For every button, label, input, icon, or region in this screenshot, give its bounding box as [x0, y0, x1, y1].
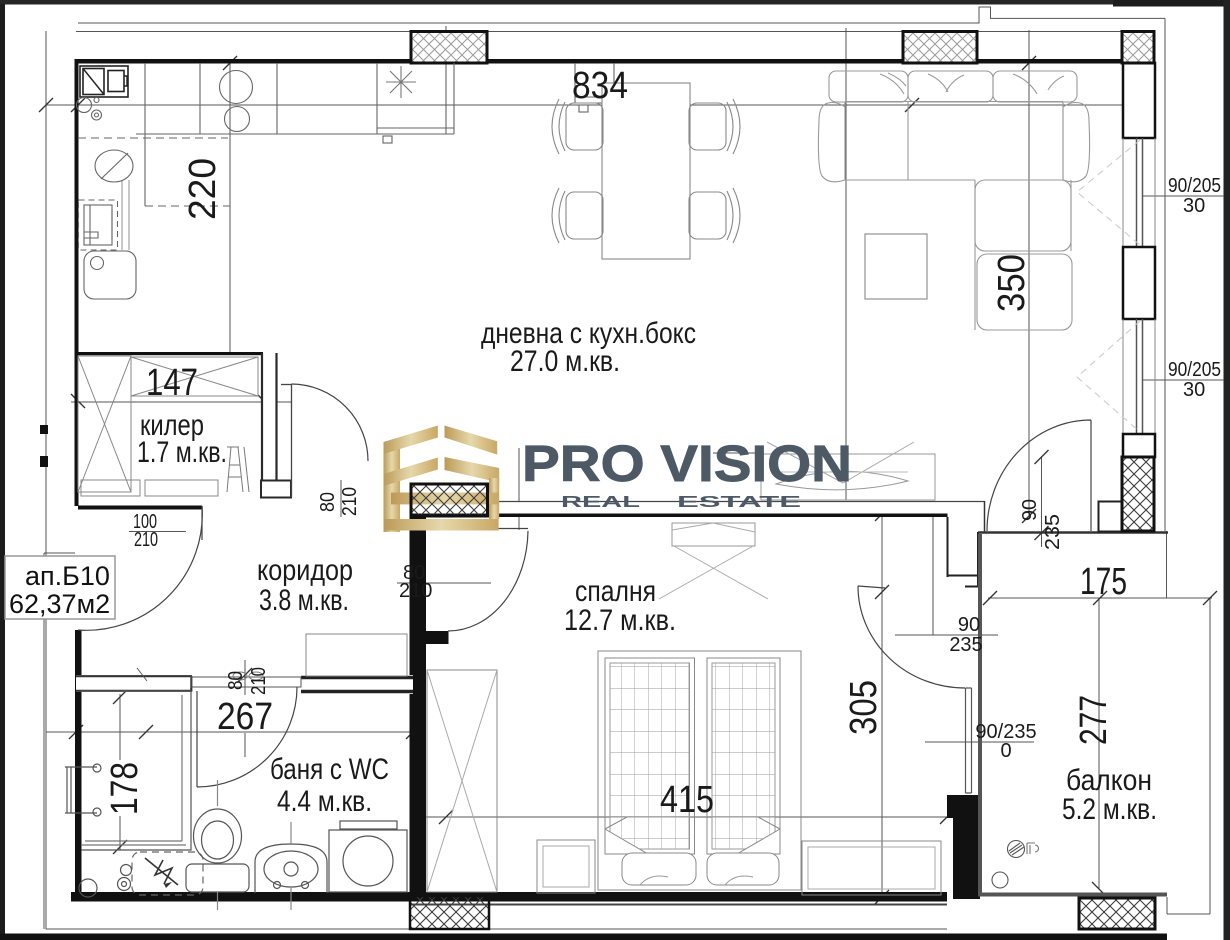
svg-text:1.7 м.кв.: 1.7 м.кв. [137, 436, 227, 469]
svg-text:210: 210 [134, 529, 158, 551]
svg-text:REAL: REAL [561, 494, 640, 511]
svg-text:350: 350 [991, 254, 1033, 312]
svg-text:30: 30 [1183, 379, 1205, 401]
svg-text:90/205: 90/205 [1168, 175, 1221, 197]
svg-text:305: 305 [843, 680, 885, 735]
svg-text:267: 267 [217, 696, 273, 738]
svg-text:0: 0 [1000, 740, 1011, 762]
svg-text:277: 277 [1073, 695, 1115, 745]
svg-text:коридор: коридор [257, 554, 353, 587]
svg-text:220: 220 [182, 158, 224, 220]
svg-text:5.2 м.кв.: 5.2 м.кв. [1062, 793, 1157, 826]
svg-text:4.4 м.кв.: 4.4 м.кв. [277, 785, 372, 818]
svg-text:3.8 м.кв.: 3.8 м.кв. [259, 584, 349, 617]
svg-text:175: 175 [1080, 561, 1127, 603]
svg-text:210: 210 [339, 487, 361, 516]
svg-text:90: 90 [1019, 499, 1041, 521]
svg-text:30: 30 [1183, 195, 1205, 217]
svg-text:баня с WC: баня с WC [270, 753, 389, 786]
svg-text:80: 80 [225, 671, 247, 690]
svg-text:ап.Б10: ап.Б10 [25, 561, 110, 591]
svg-text:80: 80 [317, 492, 339, 512]
svg-text:147: 147 [146, 362, 198, 404]
svg-text:27.0 м.кв.: 27.0 м.кв. [510, 345, 620, 378]
svg-text:210: 210 [399, 580, 432, 602]
svg-text:415: 415 [660, 779, 714, 821]
svg-text:834: 834 [572, 65, 628, 107]
svg-text:210: 210 [248, 667, 270, 695]
svg-text:12.7 м.кв.: 12.7 м.кв. [564, 604, 676, 637]
svg-text:235: 235 [1042, 514, 1064, 550]
svg-text:62,37м2: 62,37м2 [9, 589, 110, 619]
svg-text:90/205: 90/205 [1168, 359, 1221, 381]
svg-text:235: 235 [949, 634, 982, 656]
svg-text:ESTATE: ESTATE [677, 494, 801, 511]
svg-text:90: 90 [958, 614, 980, 636]
svg-text:PRO VISION: PRO VISION [522, 435, 852, 492]
svg-text:178: 178 [104, 762, 146, 815]
